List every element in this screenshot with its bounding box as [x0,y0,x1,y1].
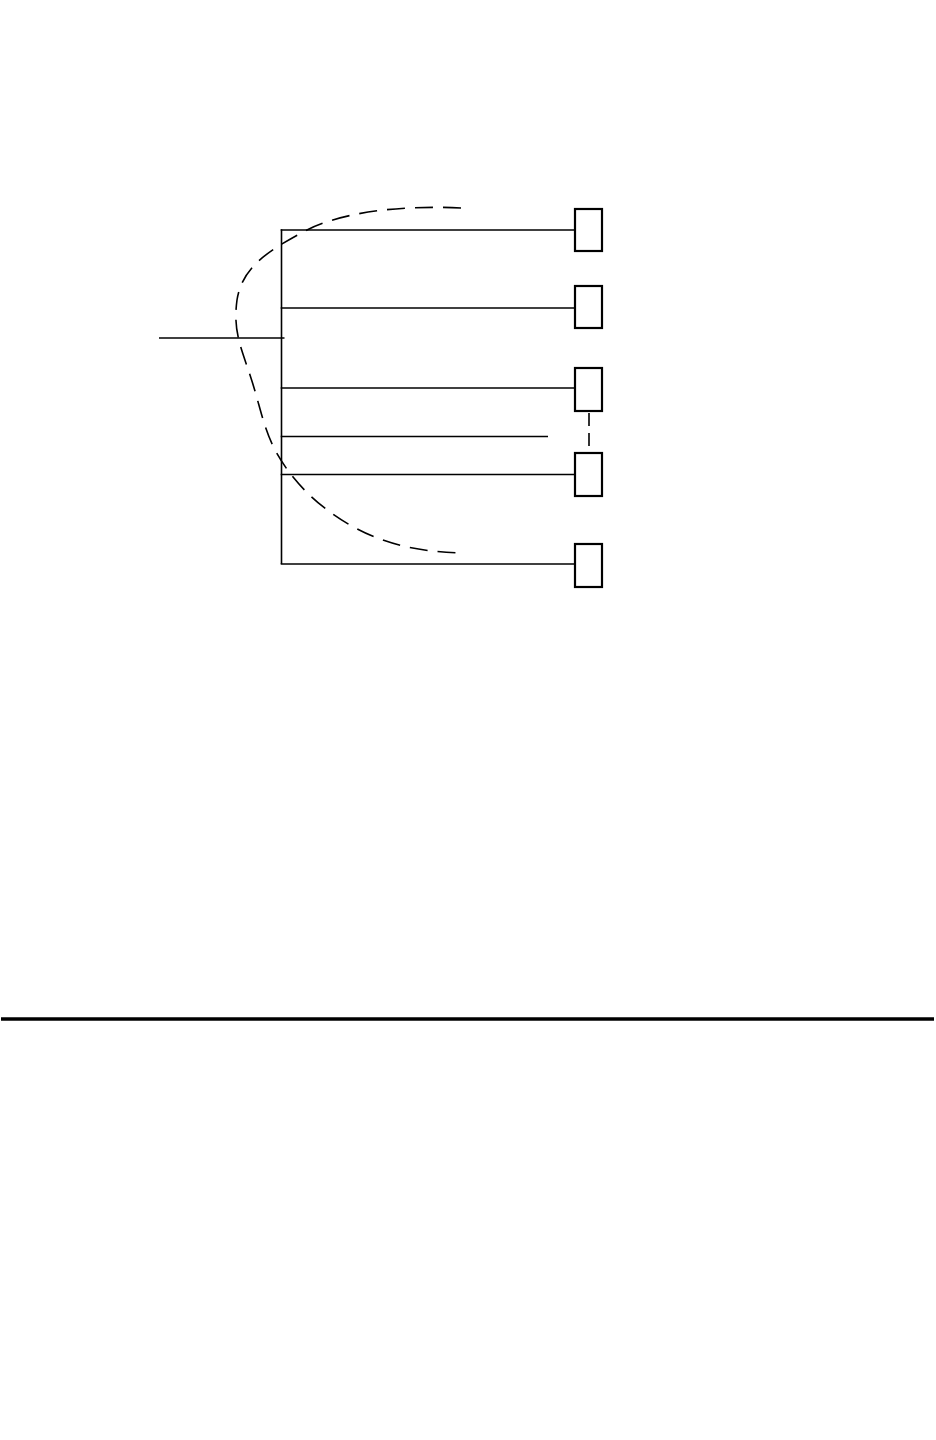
fanout-diagram [1,207,934,1019]
terminal-box-1 [575,209,602,251]
terminal-box-4 [575,453,602,496]
terminal-box-3 [575,368,602,411]
document-page [0,0,936,1440]
figure-svg [0,0,936,1440]
terminal-box-2 [575,286,602,328]
terminal-box-5 [575,544,602,587]
grouping-arc [236,207,464,553]
